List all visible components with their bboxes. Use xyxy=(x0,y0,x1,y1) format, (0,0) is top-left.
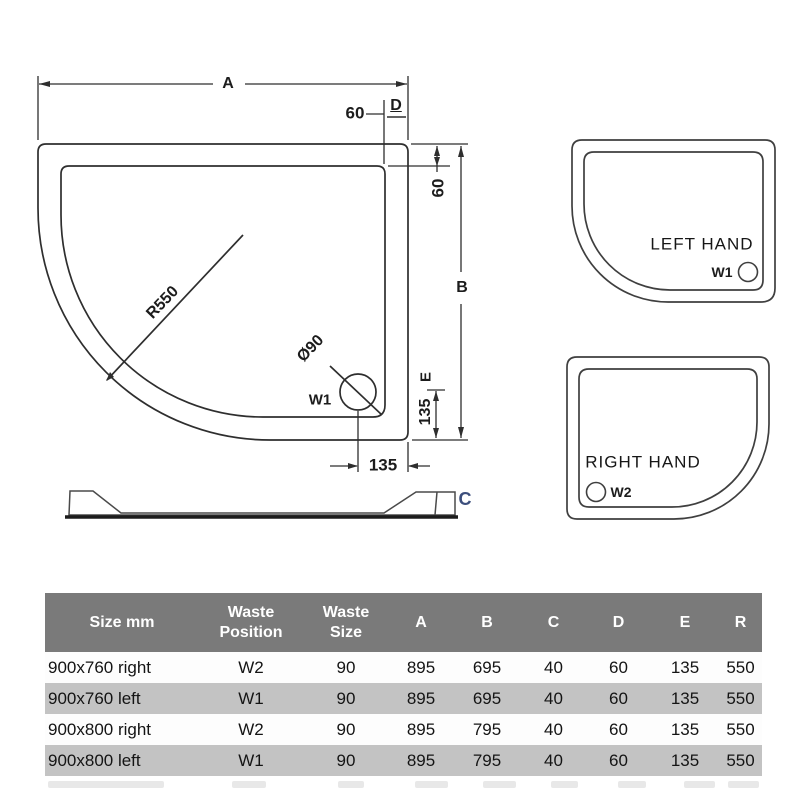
cell-d: 60 xyxy=(586,652,651,683)
cell-a: 895 xyxy=(389,745,453,776)
cell-b: 695 xyxy=(453,652,521,683)
header-e: E xyxy=(651,593,719,652)
cell-waste-position: W2 xyxy=(199,652,303,683)
header-d: D xyxy=(586,593,651,652)
dim-label-E: E xyxy=(419,372,434,382)
cell-size: 900x760 left xyxy=(45,683,199,714)
header-b: B xyxy=(453,593,521,652)
cell-d: 60 xyxy=(586,745,651,776)
cell-b: 795 xyxy=(453,714,521,745)
cell-c: 40 xyxy=(521,714,586,745)
cell-waste-size: 90 xyxy=(303,683,389,714)
cell-size: 900x800 left xyxy=(45,745,199,776)
side-profile-view xyxy=(65,491,458,517)
dim-value-top-60: 60 xyxy=(346,105,365,122)
cell-size: 900x800 right xyxy=(45,714,199,745)
dimension-arrowheads xyxy=(39,81,464,469)
dim-label-B: B xyxy=(456,280,468,296)
right-hand-waste-label: W2 xyxy=(611,485,632,499)
cell-a: 895 xyxy=(389,652,453,683)
cell-r: 550 xyxy=(719,714,762,745)
dim-value-right-60: 60 xyxy=(430,179,447,198)
waste-label-w1: W1 xyxy=(309,393,332,408)
cell-b: 695 xyxy=(453,683,521,714)
left-hand-waste-circle xyxy=(739,263,758,282)
cell-waste-position: W2 xyxy=(199,714,303,745)
left-hand-title: LEFT HAND xyxy=(650,236,753,253)
table-row: 900x800 left W1 90 895 795 40 60 135 550 xyxy=(45,745,762,776)
dim-value-bottom-135: 135 xyxy=(369,457,397,474)
cell-e: 135 xyxy=(651,652,719,683)
cell-r: 550 xyxy=(719,745,762,776)
cell-waste-size: 90 xyxy=(303,652,389,683)
dim-label-C: C xyxy=(459,490,472,508)
table-row: 900x760 right W2 90 895 695 40 60 135 55… xyxy=(45,652,762,683)
cell-d: 60 xyxy=(586,683,651,714)
header-size: Size mm xyxy=(45,593,199,652)
cell-waste-position: W1 xyxy=(199,683,303,714)
dim-label-A: A xyxy=(222,76,234,92)
shower-tray-spec-sheet: A 60 D 60 B R550 Ø90 W1 E 135 135 C LEFT… xyxy=(0,0,800,800)
right-hand-tray-inner-outline xyxy=(579,369,757,507)
cell-c: 40 xyxy=(521,683,586,714)
main-tray-inner-outline xyxy=(61,166,385,417)
header-waste-position: Waste Position xyxy=(199,593,303,652)
header-r: R xyxy=(719,593,762,652)
cell-waste-size: 90 xyxy=(303,745,389,776)
radius-line xyxy=(107,235,243,380)
right-hand-title: RIGHT HAND xyxy=(585,454,700,471)
table-row: 900x800 right W2 90 895 795 40 60 135 55… xyxy=(45,714,762,745)
right-hand-waste-circle xyxy=(587,483,606,502)
cell-e: 135 xyxy=(651,683,719,714)
header-c: C xyxy=(521,593,586,652)
header-a: A xyxy=(389,593,453,652)
left-hand-waste-label: W1 xyxy=(712,265,733,279)
table-header-row: Size mm Waste Position Waste Size A B C … xyxy=(45,593,762,652)
size-spec-table: Size mm Waste Position Waste Size A B C … xyxy=(45,593,762,776)
cell-r: 550 xyxy=(719,652,762,683)
cell-waste-size: 90 xyxy=(303,714,389,745)
cell-d: 60 xyxy=(586,714,651,745)
header-waste-size: Waste Size xyxy=(303,593,389,652)
table-row: 900x760 left W1 90 895 695 40 60 135 550 xyxy=(45,683,762,714)
cell-b: 795 xyxy=(453,745,521,776)
cell-a: 895 xyxy=(389,683,453,714)
cell-c: 40 xyxy=(521,745,586,776)
cell-e: 135 xyxy=(651,745,719,776)
dim-label-D: D xyxy=(390,98,402,114)
cell-waste-position: W1 xyxy=(199,745,303,776)
cell-e: 135 xyxy=(651,714,719,745)
cell-a: 895 xyxy=(389,714,453,745)
dim-value-e-135: 135 xyxy=(418,399,434,426)
left-hand-tray-inner-outline xyxy=(584,152,763,290)
cell-c: 40 xyxy=(521,652,586,683)
cell-r: 550 xyxy=(719,683,762,714)
cell-size: 900x760 right xyxy=(45,652,199,683)
dimension-lines xyxy=(38,76,468,472)
